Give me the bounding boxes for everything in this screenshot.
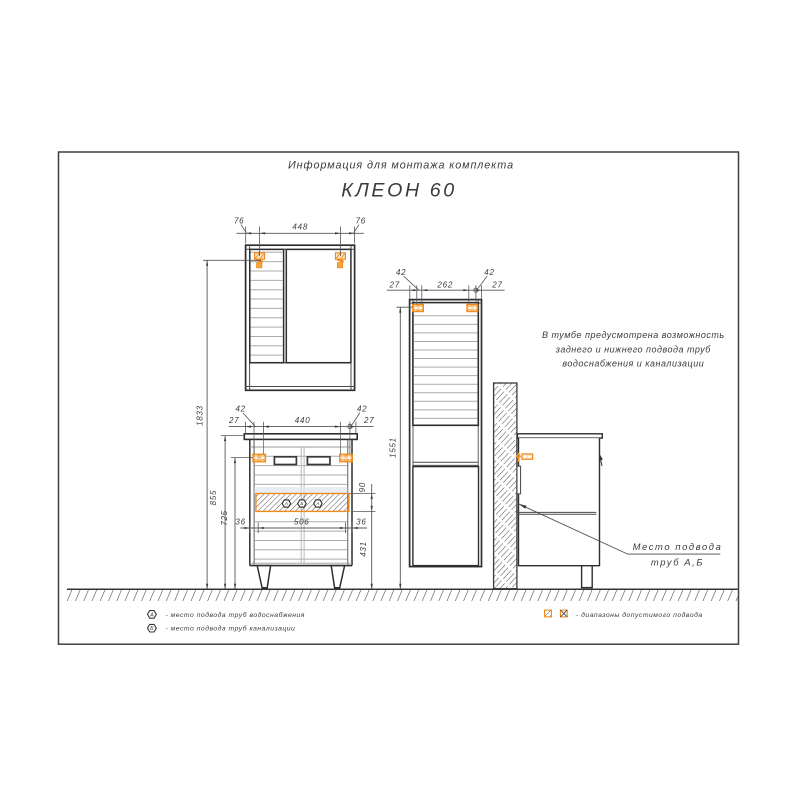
svg-text:42: 42 bbox=[235, 405, 246, 414]
svg-text:Б: Б bbox=[150, 626, 154, 632]
svg-text:262: 262 bbox=[436, 280, 453, 289]
svg-text:76: 76 bbox=[234, 216, 245, 225]
svg-text:- диапазоны допустимого подво: - диапазоны допустимого подвода bbox=[576, 611, 703, 619]
svg-text:42: 42 bbox=[484, 268, 495, 277]
svg-text:431: 431 bbox=[359, 541, 368, 556]
svg-text:1551: 1551 bbox=[389, 437, 398, 458]
svg-text:водоснабжения и канализации: водоснабжения и канализации bbox=[562, 359, 704, 369]
svg-text:Место подвода: Место подвода bbox=[633, 541, 723, 552]
svg-text:А: А bbox=[315, 501, 319, 506]
svg-text:42: 42 bbox=[396, 268, 407, 277]
svg-text:506: 506 bbox=[294, 518, 310, 527]
svg-text:448: 448 bbox=[292, 222, 308, 231]
svg-text:27: 27 bbox=[228, 416, 240, 425]
svg-text:725: 725 bbox=[220, 510, 229, 525]
svg-text:27: 27 bbox=[389, 280, 401, 289]
svg-text:труб А,Б: труб А,Б bbox=[651, 556, 704, 567]
svg-text:А: А bbox=[284, 501, 288, 506]
svg-text:27: 27 bbox=[363, 416, 375, 425]
svg-text:90: 90 bbox=[358, 482, 367, 492]
svg-text:А: А bbox=[149, 612, 154, 618]
svg-text:заднего и нижнего подвода труб: заднего и нижнего подвода труб bbox=[555, 345, 712, 355]
svg-text:440: 440 bbox=[295, 416, 311, 425]
svg-text:76: 76 bbox=[356, 216, 367, 225]
svg-text:- место подвода труб водоснаб: - место подвода труб водоснабжения bbox=[166, 611, 305, 619]
svg-text:КЛЕОН 60: КЛЕОН 60 bbox=[341, 180, 456, 202]
svg-text:42: 42 bbox=[357, 405, 368, 414]
svg-text:36: 36 bbox=[356, 518, 367, 527]
svg-text:36: 36 bbox=[235, 518, 246, 527]
svg-text:27: 27 bbox=[491, 280, 503, 289]
svg-text:В тумбе предусмотрена возможно: В тумбе предусмотрена возможность bbox=[542, 330, 725, 340]
svg-text:1833: 1833 bbox=[195, 405, 204, 426]
svg-text:Информация для монтажа комплек: Информация для монтажа комплекта bbox=[288, 160, 514, 172]
svg-text:855: 855 bbox=[209, 490, 218, 505]
svg-text:Б: Б bbox=[300, 501, 303, 506]
svg-text:- место подвода труб канализа: - место подвода труб канализации bbox=[166, 625, 296, 633]
